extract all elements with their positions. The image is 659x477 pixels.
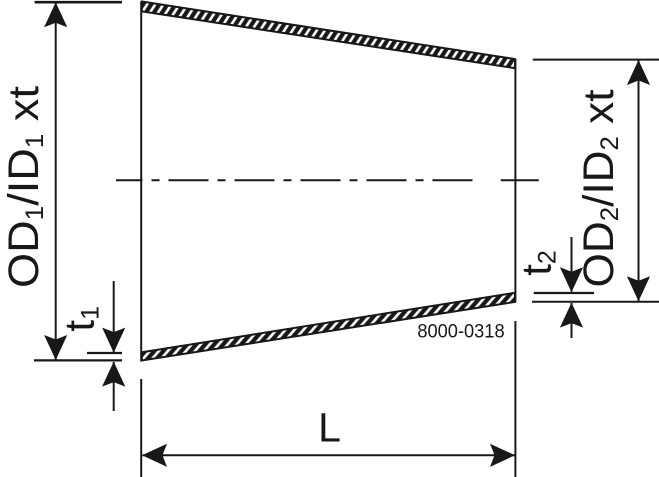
svg-text:OD2/ID2 xt: OD2/ID2 xt (575, 89, 624, 287)
svg-text:L: L (318, 405, 341, 451)
svg-text:8000-0318: 8000-0318 (417, 320, 504, 342)
svg-text:OD1/ID1 xt: OD1/ID1 xt (0, 86, 49, 288)
